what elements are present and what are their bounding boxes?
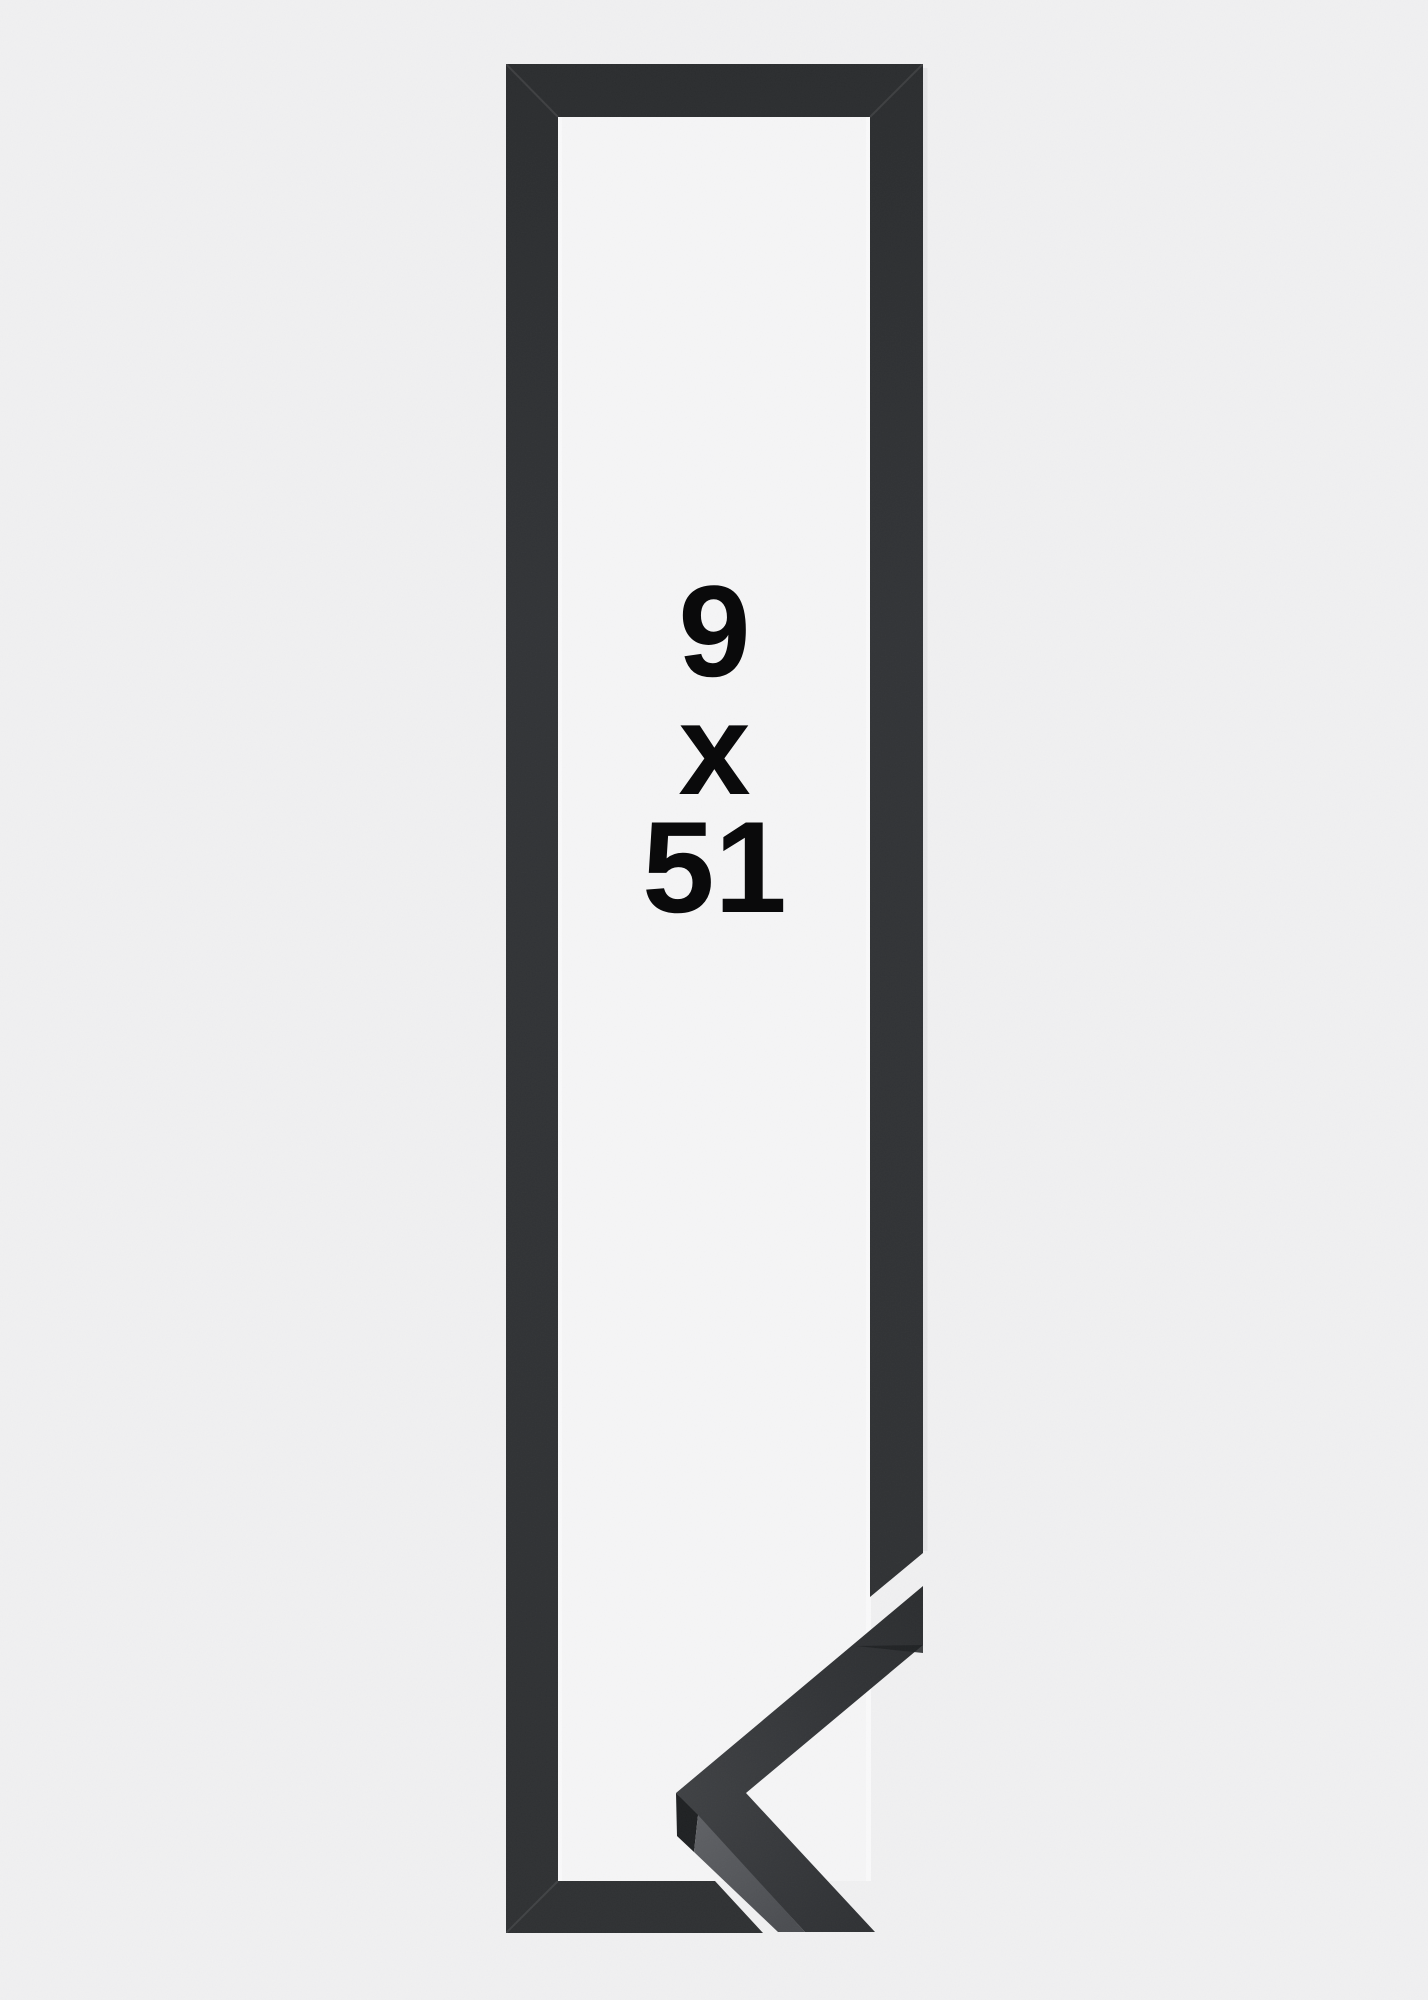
product-image: 9 x 51	[0, 0, 1428, 2000]
size-label-separator: x	[678, 690, 750, 808]
size-label-height: 51	[642, 808, 787, 926]
size-label-width: 9	[678, 572, 750, 690]
frame-product-graphic	[0, 0, 1428, 2000]
photo-grain-overlay	[0, 0, 1428, 2000]
size-label: 9 x 51	[558, 572, 871, 926]
